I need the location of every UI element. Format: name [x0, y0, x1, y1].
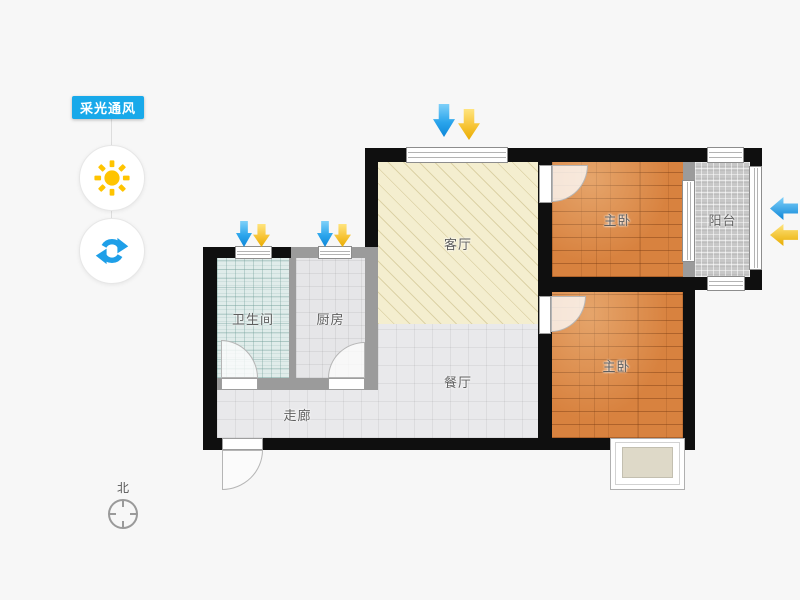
window-balcony-top	[707, 147, 744, 163]
sun-button[interactable]	[79, 145, 145, 211]
room-living-label: 客厅	[444, 234, 472, 253]
window-kitchen	[318, 246, 352, 259]
window-balcony-bottom	[707, 276, 745, 291]
room-corridor-label: 走廊	[283, 405, 311, 424]
wall	[750, 268, 762, 290]
wall	[538, 277, 695, 292]
entry-door	[222, 438, 263, 450]
entry-door-arc	[222, 450, 263, 490]
refresh-button[interactable]	[79, 218, 145, 284]
room-dining-label: 餐厅	[444, 372, 472, 391]
window-balcony-right	[749, 166, 762, 270]
window-living	[406, 147, 508, 163]
floorplan-viewer: 采光通风 客厅 餐厅 走廊	[0, 0, 800, 600]
bay-window	[610, 438, 685, 490]
bay-window-sill	[622, 447, 673, 478]
wall	[289, 258, 296, 378]
bedroom-top-door	[539, 165, 552, 203]
mode-tag-label: 采光通风	[80, 98, 136, 117]
room-dining: 餐厅	[378, 324, 538, 438]
room-bedroom-top-label: 主卧	[603, 210, 631, 229]
kitchen-door	[328, 378, 365, 390]
light-arrow-icon	[253, 224, 270, 247]
bedroom-bottom-door	[539, 296, 551, 334]
wall	[683, 290, 695, 450]
room-balcony-label: 阳台	[708, 210, 736, 229]
window-bathroom	[235, 246, 272, 259]
compass: 北	[100, 481, 146, 529]
mode-tag[interactable]: 采光通风	[72, 96, 144, 119]
wind-arrow-icon	[433, 104, 455, 137]
room-bathroom-label: 卫生间	[232, 309, 274, 328]
window-bedroom-balcony	[682, 180, 695, 262]
refresh-icon	[95, 234, 129, 268]
wind-arrow-icon	[236, 221, 252, 247]
wall	[750, 148, 762, 168]
room-kitchen-label: 厨房	[316, 309, 344, 328]
bathroom-door	[221, 378, 258, 390]
wall	[365, 252, 378, 390]
wind-arrow-icon	[770, 197, 798, 220]
room-balcony: 阳台	[695, 162, 750, 277]
north-circle-icon	[108, 499, 138, 529]
light-arrow-icon	[458, 109, 480, 140]
compass-label: 北	[100, 481, 146, 495]
wind-arrow-icon	[317, 221, 333, 247]
room-bedroom-bottom-label: 主卧	[602, 356, 630, 375]
room-corridor: 走廊	[217, 390, 378, 438]
light-arrow-icon	[770, 224, 798, 246]
sun-icon	[93, 159, 131, 197]
room-living: 客厅	[378, 162, 538, 324]
wall	[203, 247, 217, 450]
light-arrow-icon	[334, 224, 351, 247]
wall	[365, 148, 378, 254]
